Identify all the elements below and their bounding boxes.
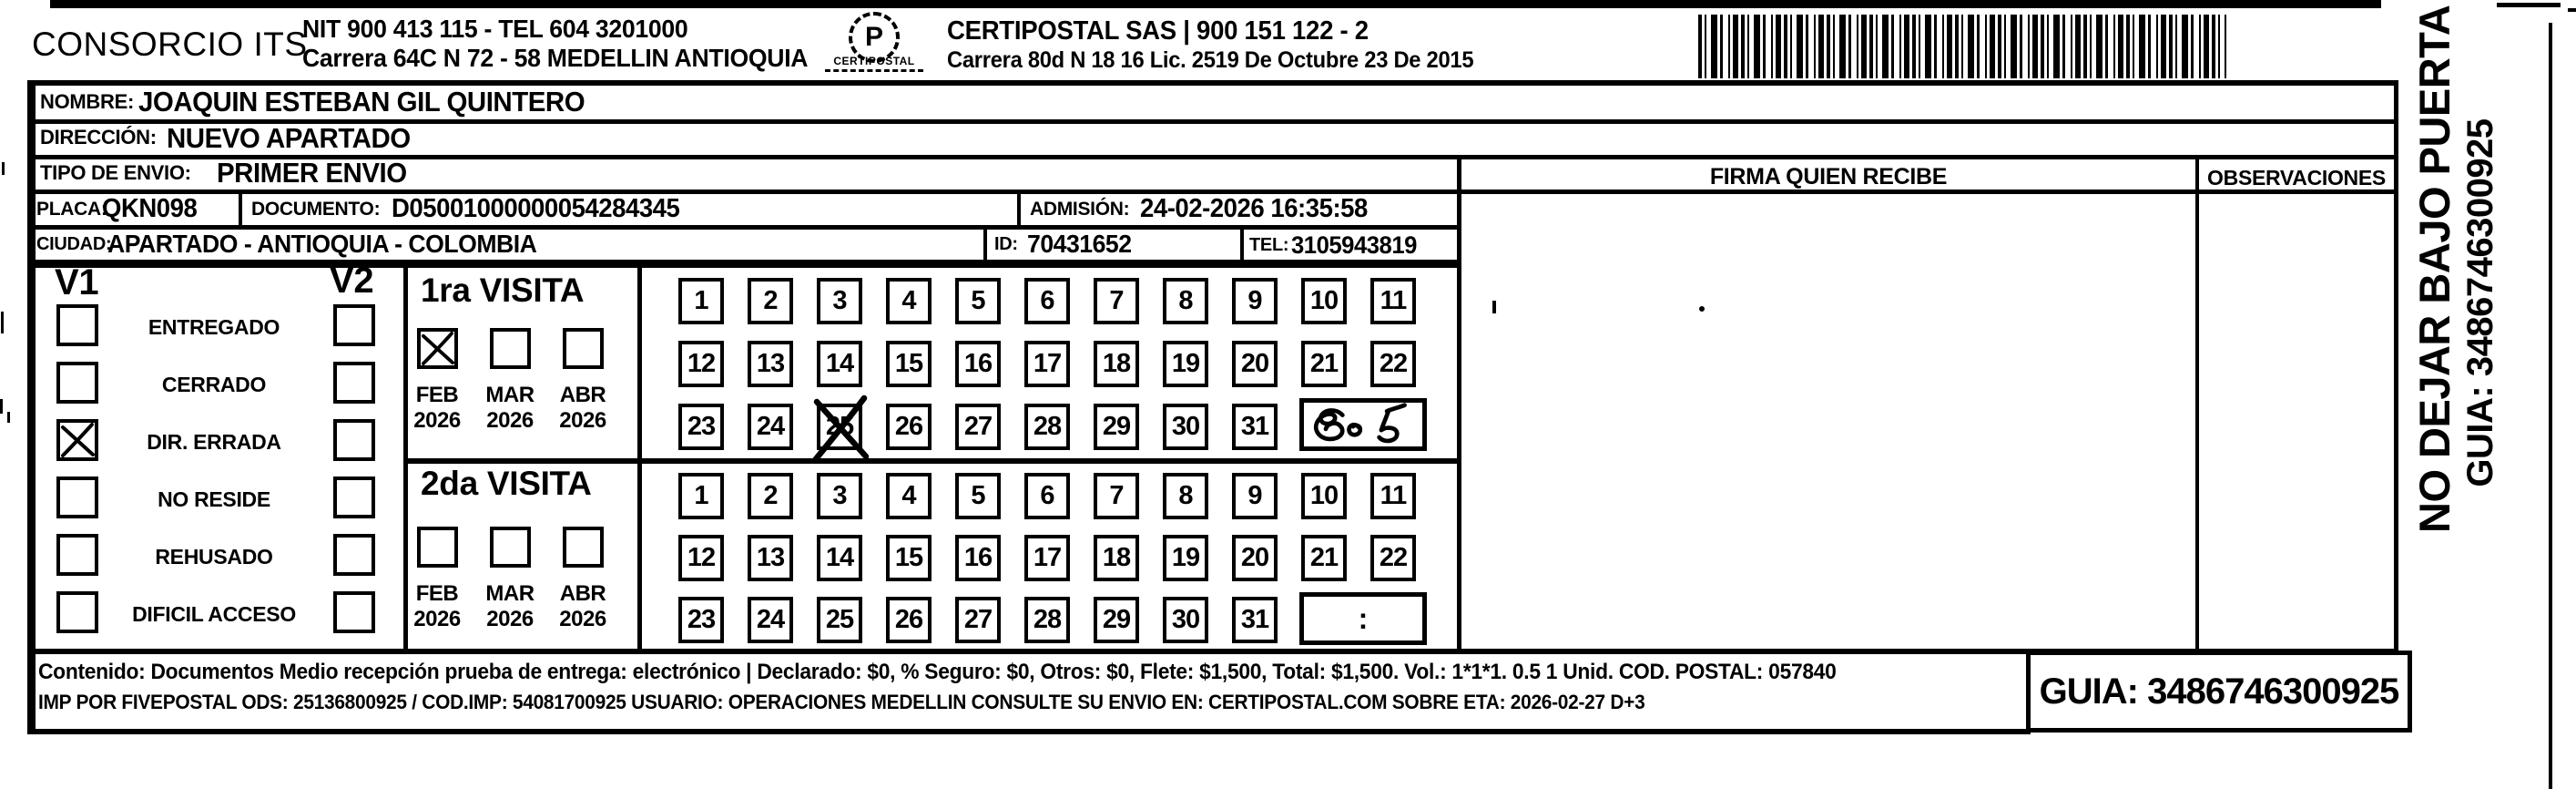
visit2-day-cell[interactable]: 24	[748, 597, 793, 643]
visit1-day-cell[interactable]: 1	[678, 278, 724, 324]
visit1-day-cell[interactable]: 8	[1163, 278, 1208, 324]
observaciones-header: OBSERVACIONES	[2199, 166, 2394, 190]
visit2-day-cell[interactable]: 9	[1232, 473, 1278, 519]
shipment-barcode	[1698, 15, 2226, 78]
footer-imp-line: IMP POR FIVEPOSTAL ODS: 25136800925 / CO…	[38, 691, 1644, 714]
visit1-day-cell[interactable]: 15	[886, 341, 932, 387]
visit2-day-cell[interactable]: 3	[817, 473, 862, 519]
visit2-day-cell[interactable]: 5	[955, 473, 1001, 519]
v1-checkbox-dir-errada[interactable]	[56, 419, 98, 461]
visit2-year-label: 2026	[475, 607, 545, 632]
visit1-title: 1ra VISITA	[421, 272, 584, 310]
visit1-month-checkbox-abr[interactable]	[563, 328, 604, 369]
tipo-envio-label: TIPO DE ENVIO:	[40, 161, 191, 185]
visit2-time-box[interactable]: :	[1299, 592, 1427, 645]
visit2-day-cell[interactable]: 12	[678, 535, 724, 581]
table-border	[983, 225, 987, 268]
visit2-day-cell[interactable]: 10	[1301, 473, 1347, 519]
v1-checkbox-rehusado[interactable]	[56, 534, 98, 576]
visit1-day-cell[interactable]: 9	[1232, 278, 1278, 324]
provider-address-line: Carrera 80d N 18 16 Lic. 2519 De Octubre…	[947, 47, 1473, 74]
side-vertical-text: NO DEJAR BAJO PUERTA GUIA: 3486746300925	[2411, 73, 2502, 533]
visit1-month-checkbox-mar[interactable]	[490, 328, 531, 369]
visit1-day-cell[interactable]: 12	[678, 341, 724, 387]
page-right-edge-line	[2549, 23, 2552, 789]
visit2-month-checkbox-feb[interactable]	[417, 527, 458, 568]
ciudad-value: APARTADO - ANTIOQUIA - COLOMBIA	[107, 230, 536, 259]
tel-value: 3105943819	[1291, 231, 1417, 260]
table-border	[27, 260, 1461, 268]
placa-value: QKN098	[102, 194, 197, 224]
visit1-year-label: 2026	[475, 408, 545, 434]
logo-caption: CERTIPOSTAL	[820, 55, 929, 67]
visit1-day-cell[interactable]: 29	[1094, 404, 1139, 450]
visit1-day-cell[interactable]: 27	[955, 404, 1001, 450]
visit1-day-cell[interactable]: 31	[1232, 404, 1278, 450]
v2-checkbox-dificil-acceso[interactable]	[333, 591, 375, 633]
visit2-day-cell[interactable]: 21	[1301, 535, 1347, 581]
nombre-value: JOAQUIN ESTEBAN GIL QUINTERO	[138, 86, 585, 118]
visit1-month-checkbox-feb[interactable]	[417, 328, 458, 369]
status-option-label: CERRADO	[105, 373, 323, 397]
guia-number: GUIA: 3486746300925	[2040, 671, 2399, 712]
tel-label: TEL:	[1249, 235, 1288, 256]
visit2-day-cell[interactable]: 16	[955, 535, 1001, 581]
visit1-day-cell[interactable]: 17	[1024, 341, 1070, 387]
visit2-day-cell[interactable]: 11	[1370, 473, 1416, 519]
visit1-month-label: FEB	[402, 383, 472, 408]
v1-checkbox-no-reside[interactable]	[56, 476, 98, 518]
v2-checkbox-rehusado[interactable]	[333, 534, 375, 576]
visit1-day-cell[interactable]: 3	[817, 278, 862, 324]
visit2-day-cell[interactable]: 8	[1163, 473, 1208, 519]
firma-header: FIRMA QUIEN RECIBE	[1461, 164, 2195, 190]
visit2-day-cell[interactable]: 18	[1094, 535, 1139, 581]
visit2-day-cell[interactable]: 26	[886, 597, 932, 643]
visit2-day-cell[interactable]: 29	[1094, 597, 1139, 643]
v2-checkbox-cerrado[interactable]	[333, 362, 375, 404]
visit2-day-cell[interactable]: 1	[678, 473, 724, 519]
visit1-day-cell[interactable]: 2	[748, 278, 793, 324]
visit1-year-label: 2026	[548, 408, 617, 434]
visit2-day-cell[interactable]: 28	[1024, 597, 1070, 643]
table-border	[403, 458, 1461, 464]
nombre-label: NOMBRE:	[40, 90, 134, 114]
visit1-day-cell[interactable]: 26	[886, 404, 932, 450]
visit1-day-cell[interactable]: 21	[1301, 341, 1347, 387]
logo-glyph: P	[865, 22, 883, 53]
v2-checkbox-dir-errada[interactable]	[333, 419, 375, 461]
visit1-day-cell[interactable]: 23	[678, 404, 724, 450]
scan-artifact	[7, 412, 10, 423]
visit1-month-label: ABR	[548, 383, 617, 408]
visit2-month-checkbox-abr[interactable]	[563, 527, 604, 568]
visit1-day-cell[interactable]: 18	[1094, 341, 1139, 387]
visit2-day-cell[interactable]: 13	[748, 535, 793, 581]
documento-label: DOCUMENTO:	[251, 199, 380, 220]
status-option-label: DIFICIL ACCESO	[105, 602, 323, 627]
visit2-month-checkbox-mar[interactable]	[490, 527, 531, 568]
provider-name-line: CERTIPOSTAL SAS | 900 151 122 - 2	[947, 16, 1369, 46]
v2-checkbox-no-reside[interactable]	[333, 476, 375, 518]
visit1-day-cell[interactable]: 24	[748, 404, 793, 450]
table-border	[27, 729, 2031, 734]
visit2-year-label: 2026	[402, 607, 472, 632]
table-border	[2394, 80, 2398, 654]
company-nit-line: NIT 900 413 115 - TEL 604 3201000	[302, 15, 687, 44]
visit2-month-label: FEB	[402, 581, 472, 607]
visit2-day-cell[interactable]: 2	[748, 473, 793, 519]
visit2-day-cell[interactable]: 7	[1094, 473, 1139, 519]
visit1-day-cell[interactable]: 11	[1370, 278, 1416, 324]
delivery-slip-document: CONSORCIO ITS NIT 900 413 115 - TEL 604 …	[0, 0, 2576, 789]
visit1-day-cell[interactable]: 30	[1163, 404, 1208, 450]
visit1-day-cell[interactable]: 14	[817, 341, 862, 387]
visit2-day-cell[interactable]: 27	[955, 597, 1001, 643]
scan-artifact	[2568, 8, 2576, 12]
v2-header: V2	[330, 261, 373, 302]
visit1-day-cell[interactable]: 22	[1370, 341, 1416, 387]
visit1-day-cell[interactable]: 7	[1094, 278, 1139, 324]
visit2-day-cell[interactable]: 4	[886, 473, 932, 519]
visit2-day-cell[interactable]: 6	[1024, 473, 1070, 519]
placa-label: PLACA:	[36, 199, 107, 220]
scan-artifact	[1699, 306, 1705, 312]
no-dejar-bajo-puerta-warning: NO DEJAR BAJO PUERTA	[2411, 73, 2459, 533]
visit2-month-label: MAR	[475, 581, 545, 607]
status-option-label: REHUSADO	[105, 545, 323, 569]
status-option-label: ENTREGADO	[105, 315, 323, 340]
visit2-day-cell[interactable]: 22	[1370, 535, 1416, 581]
id-label: ID:	[994, 234, 1018, 255]
visit2-day-cell[interactable]: 30	[1163, 597, 1208, 643]
table-border	[27, 80, 36, 734]
status-option-label: NO RESIDE	[105, 487, 323, 512]
side-guia-number: GUIA: 3486746300925	[2459, 73, 2502, 533]
visit2-day-cell[interactable]: 14	[817, 535, 862, 581]
documento-value: D05001000000054284345	[392, 194, 679, 224]
id-value: 70431652	[1027, 230, 1132, 259]
visit2-day-cell[interactable]: 19	[1163, 535, 1208, 581]
footer-content-line: Contenido: Documentos Medio recepción pr…	[38, 660, 1837, 685]
visit2-day-cell[interactable]: 23	[678, 597, 724, 643]
visit1-day-cell[interactable]: 4	[886, 278, 932, 324]
company-address-line: Carrera 64C N 72 - 58 MEDELLIN ANTIOQUIA	[302, 44, 808, 73]
v1-header: V1	[55, 262, 98, 303]
scan-artifact	[2497, 3, 2561, 7]
table-border	[1240, 225, 1244, 268]
visit1-day-cell[interactable]: 16	[955, 341, 1001, 387]
visit1-handwritten-time[interactable]	[1299, 398, 1427, 451]
visit2-day-cell[interactable]: 15	[886, 535, 932, 581]
visit1-day-cell[interactable]: 13	[748, 341, 793, 387]
visit2-day-cell[interactable]: 20	[1232, 535, 1278, 581]
visit1-day-cell[interactable]: 10	[1301, 278, 1347, 324]
admision-value: 24-02-2026 16:35:58	[1140, 194, 1368, 224]
table-border	[1017, 190, 1021, 230]
visit2-day-cell[interactable]: 17	[1024, 535, 1070, 581]
scan-artifact	[1, 312, 4, 333]
handwritten-x-mark	[804, 393, 877, 464]
ciudad-label: CIUDAD:	[36, 234, 111, 255]
visit2-month-label: ABR	[548, 581, 617, 607]
logo-tagline-rule	[825, 69, 923, 72]
visit1-day-cell[interactable]: 19	[1163, 341, 1208, 387]
visit1-day-cell[interactable]: 28	[1024, 404, 1070, 450]
top-scan-bar	[50, 0, 2381, 8]
v1-checkbox-entregado[interactable]	[56, 304, 98, 346]
observaciones-area[interactable]	[2199, 194, 2394, 649]
scan-artifact	[1492, 301, 1496, 313]
visit1-month-label: MAR	[475, 383, 545, 408]
v1-checkbox-dificil-acceso[interactable]	[56, 591, 98, 633]
visit1-day-cell[interactable]: 20	[1232, 341, 1278, 387]
scan-artifact	[2, 162, 5, 175]
visit1-day-cell[interactable]: 6	[1024, 278, 1070, 324]
v2-checkbox-entregado[interactable]	[333, 304, 375, 346]
visit2-day-cell[interactable]: 25	[817, 597, 862, 643]
firma-signature-area[interactable]	[1461, 194, 2195, 649]
admision-label: ADMISIÓN:	[1030, 199, 1129, 220]
visit2-year-label: 2026	[548, 607, 617, 632]
guia-number-box: GUIA: 3486746300925	[2026, 651, 2412, 733]
visit1-year-label: 2026	[402, 408, 472, 434]
v1-checkbox-cerrado[interactable]	[56, 362, 98, 404]
table-border	[637, 260, 642, 654]
visit2-day-cell[interactable]: 31	[1232, 597, 1278, 643]
direccion-value: NUEVO APARTADO	[167, 122, 411, 155]
status-option-label: DIR. ERRADA	[105, 430, 323, 455]
direccion-label: DIRECCIÓN:	[40, 126, 157, 149]
visit2-title: 2da VISITA	[421, 465, 592, 503]
table-border	[239, 190, 242, 230]
scan-artifact	[0, 399, 3, 414]
visit1-day-cell[interactable]: 5	[955, 278, 1001, 324]
company-name: CONSORCIO ITS	[32, 26, 308, 64]
tipo-envio-value: PRIMER ENVIO	[217, 157, 407, 190]
